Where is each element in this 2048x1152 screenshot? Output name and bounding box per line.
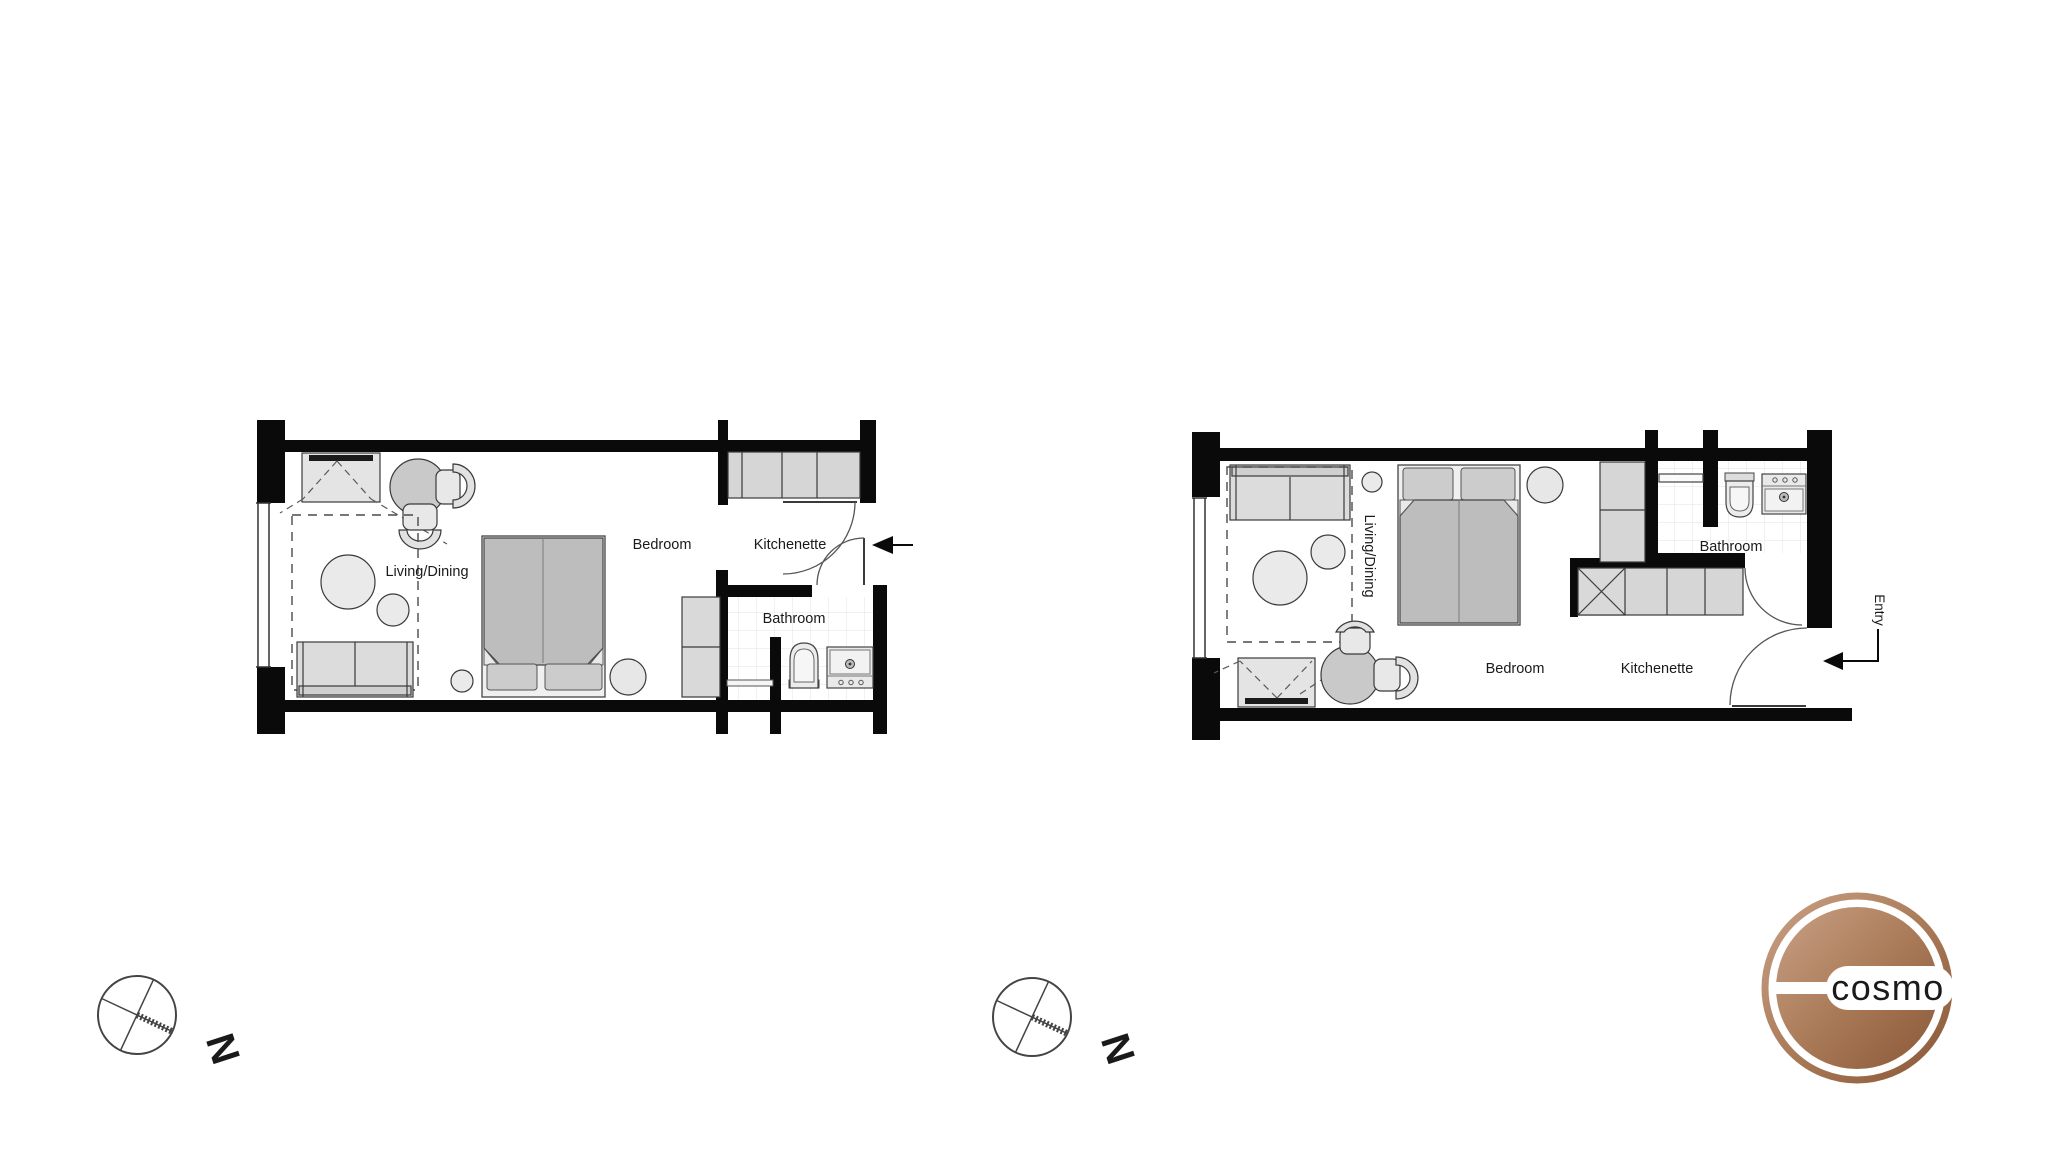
armchair-east (436, 464, 475, 508)
pillow (1403, 468, 1453, 500)
bed (482, 536, 605, 697)
stool-small (1362, 472, 1382, 492)
toilet (1725, 473, 1754, 517)
kitchenette-cabinets (728, 452, 860, 498)
tv-screen (309, 455, 373, 461)
side-table (1311, 535, 1345, 569)
pillow (545, 664, 602, 690)
cosmo-logo: cosmo (1765, 896, 1954, 1080)
logo-stem (1772, 982, 1834, 994)
sink-vanity (827, 647, 873, 688)
sink-vanity (1762, 474, 1806, 514)
room-label-kitchenette: Kitchenette (754, 537, 827, 553)
shower-tray (727, 680, 773, 686)
toilet (789, 643, 819, 688)
room-label-living-dining: Living/Dining (1361, 514, 1377, 597)
side-table (377, 594, 409, 626)
wardrobe (682, 597, 720, 697)
tall-cabinets (1600, 462, 1645, 562)
room-label-bathroom: Bathroom (763, 611, 826, 627)
tv-screen (1245, 698, 1308, 704)
entry-label: Entry (1872, 594, 1887, 626)
sofa (297, 642, 413, 697)
room-label-bathroom: Bathroom (1700, 539, 1763, 555)
chair-north (1336, 621, 1374, 654)
coffee-table (1253, 551, 1307, 605)
stool-small (451, 670, 473, 692)
pillow (1461, 468, 1515, 500)
chair-south (399, 504, 441, 549)
bedside-stool (1527, 467, 1563, 503)
brand-wordmark: cosmo (1831, 967, 1945, 1008)
kitchenette-counter (1578, 568, 1743, 615)
room-label-bedroom: Bedroom (633, 537, 692, 553)
coffee-table (321, 555, 375, 609)
shower-screen (1659, 474, 1703, 482)
bed (1398, 465, 1520, 625)
bedside-stool (610, 659, 646, 695)
pillow (487, 664, 537, 690)
lounge-table (1321, 646, 1379, 704)
floorplan-sheet: Living/Dining Bedroom Kitchenette Bathro… (0, 0, 2048, 1152)
room-label-bedroom: Bedroom (1486, 661, 1545, 677)
room-label-living-dining: Living/Dining (385, 564, 468, 580)
room-label-kitchenette: Kitchenette (1621, 661, 1694, 677)
sofa (1230, 465, 1350, 520)
